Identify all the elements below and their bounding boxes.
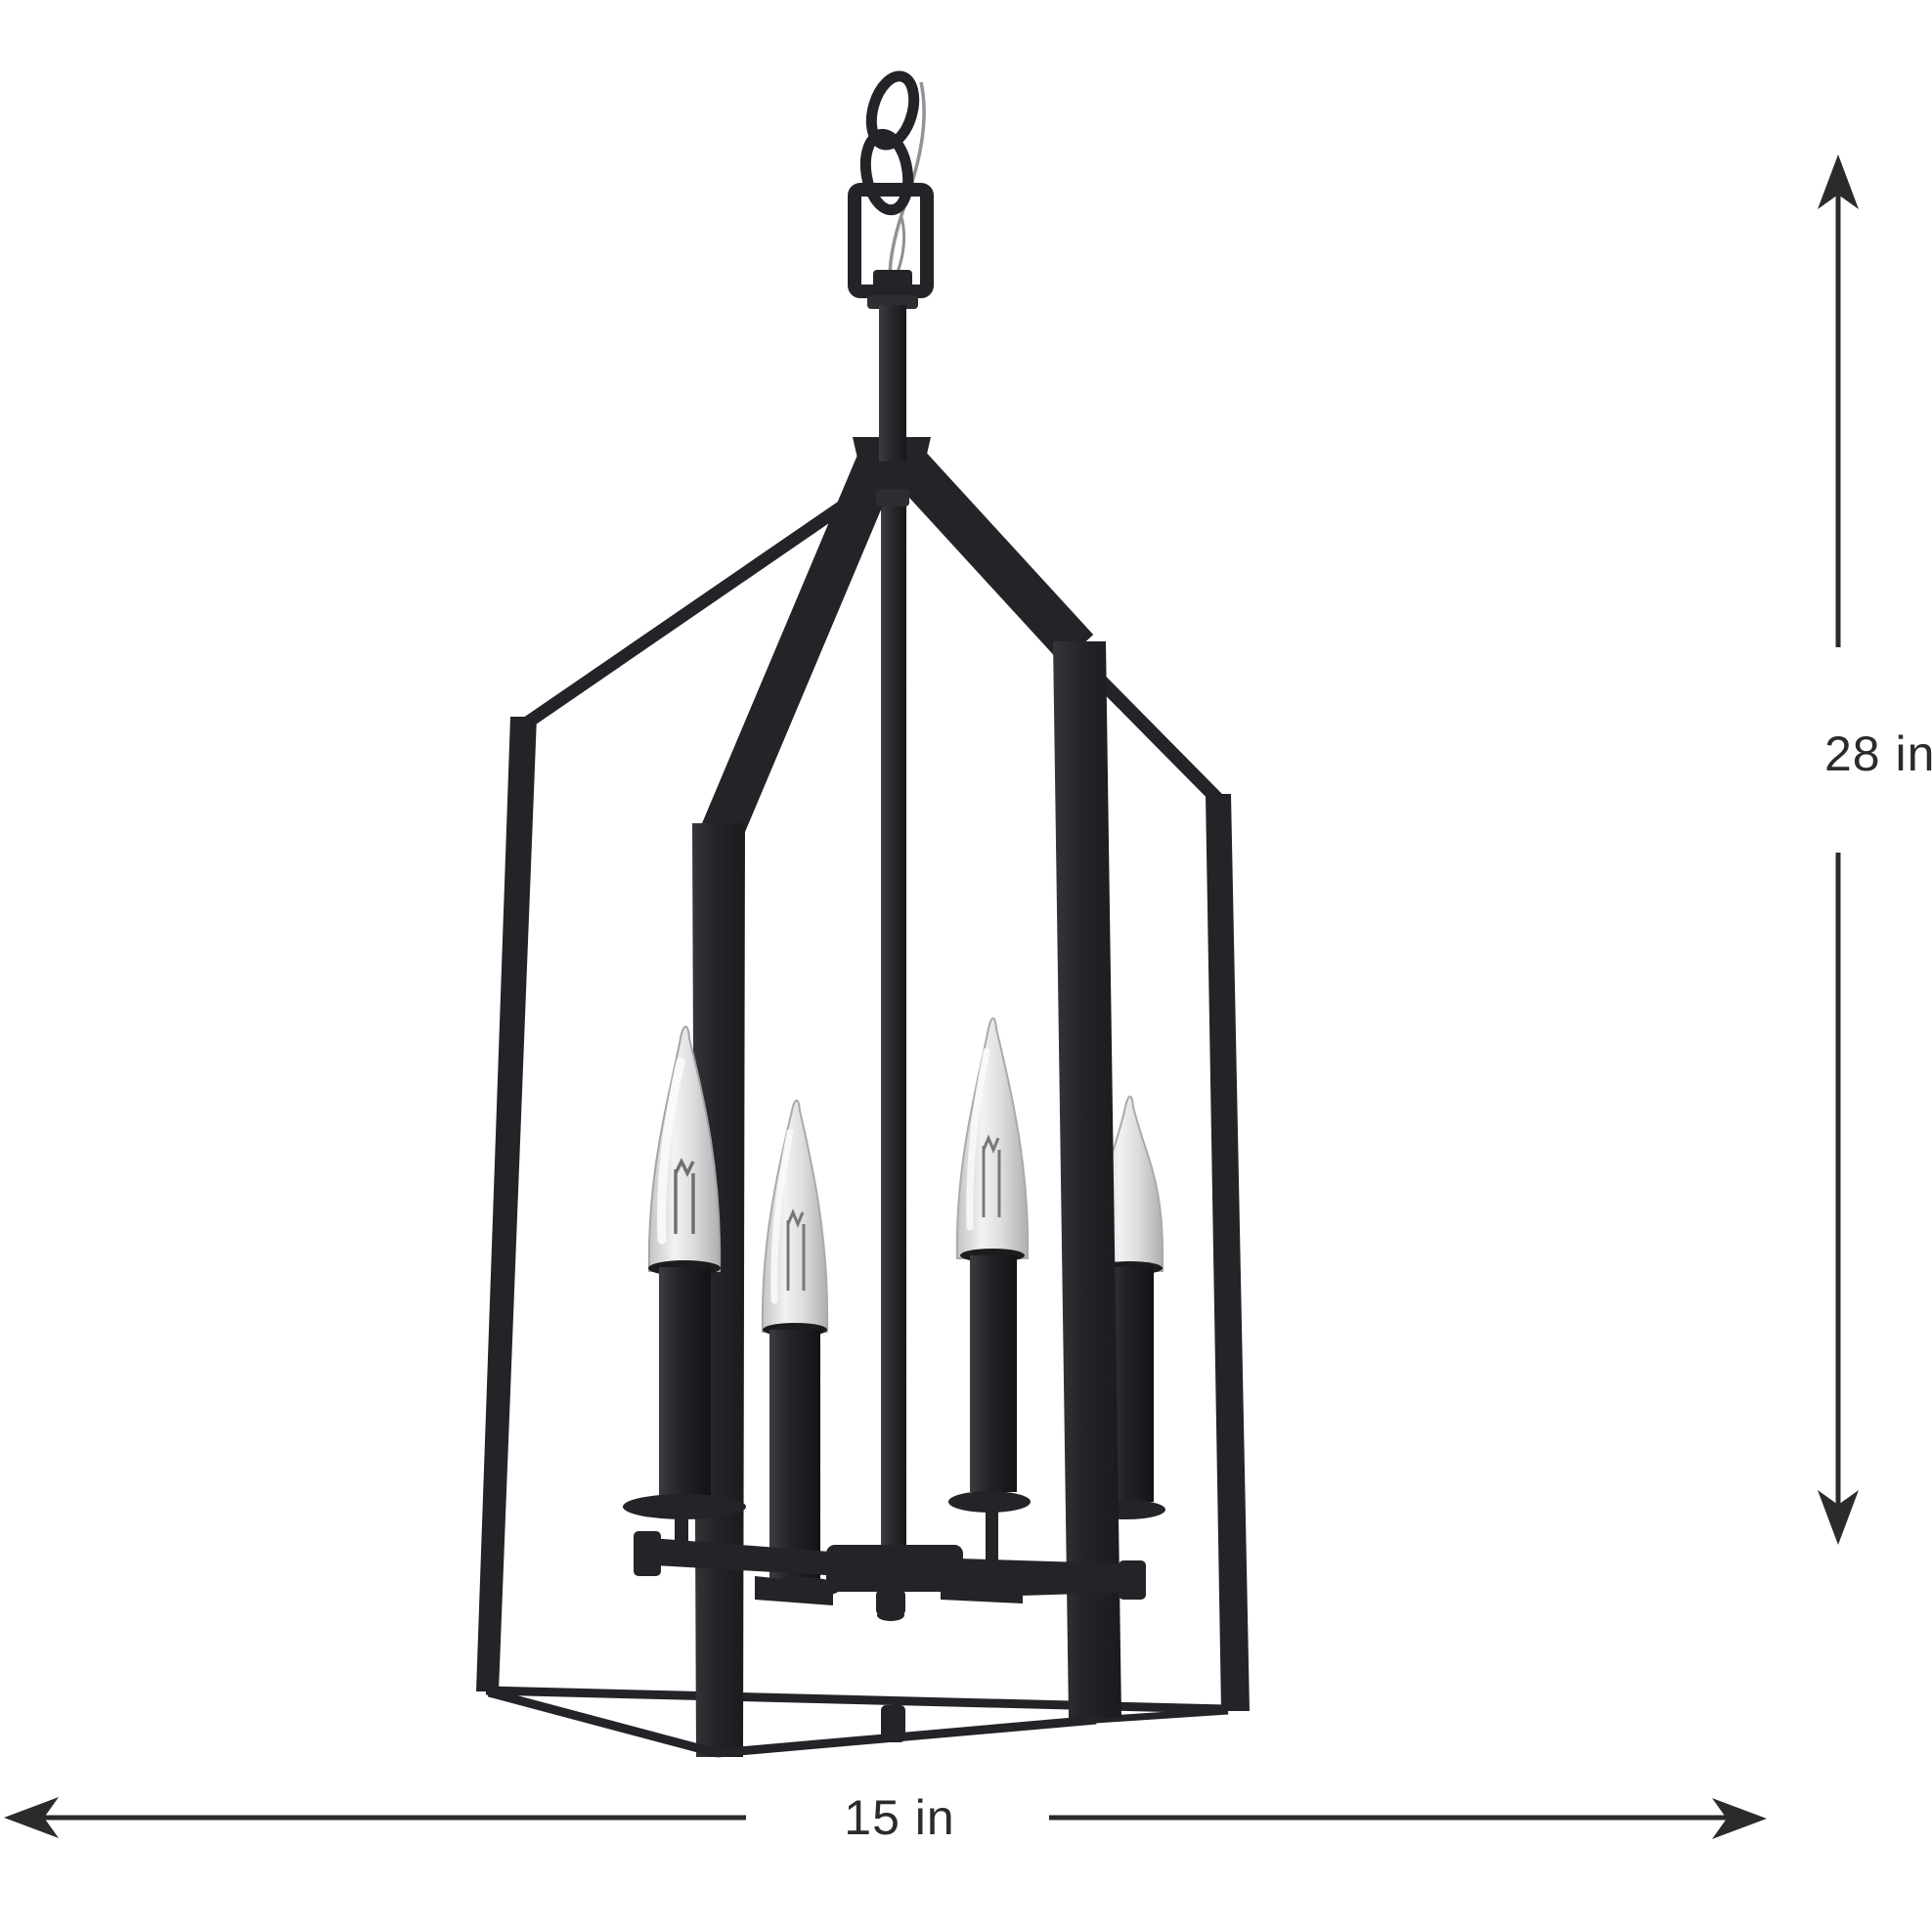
apex-nut <box>876 489 909 506</box>
bobeche-rear-right <box>948 1491 1031 1513</box>
arm-front-right-bar <box>958 1559 1144 1598</box>
width-dimension: 15 in <box>4 1790 1767 1845</box>
candle-rear-right <box>948 1019 1031 1572</box>
roof-rib-front-right <box>905 461 1077 649</box>
roof-rib-front-left <box>720 461 878 837</box>
candle-sleeve-front-left <box>659 1267 711 1502</box>
frame-bar-rear-right <box>1206 794 1250 1711</box>
bottom-rail-front <box>717 1720 1096 1753</box>
cage-frame-rear <box>476 477 1250 1720</box>
product-dimension-figure: 28 in 15 in <box>0 0 1932 1932</box>
candle-rear-left <box>759 1101 841 1600</box>
hanging-assembly <box>855 71 927 461</box>
center-rod <box>881 489 906 1551</box>
pendant-diagram-canvas: 28 in 15 in <box>0 0 1932 1932</box>
width-dimension-label: 15 in <box>844 1790 954 1845</box>
frame-bar-rear-left <box>476 717 537 1691</box>
bottom-center-stub <box>881 1705 905 1742</box>
frame-bar-front-right <box>1053 641 1121 1718</box>
upper-rod <box>879 305 906 461</box>
height-dimension-label: 28 in <box>1824 726 1932 781</box>
hub-plate <box>826 1545 963 1592</box>
stem-collar <box>873 270 912 299</box>
arm-cap-front-left <box>634 1531 661 1576</box>
candle-stem-front-left <box>675 1515 688 1549</box>
bottom-rail-left <box>489 1692 717 1753</box>
candle-sleeve-rear-left <box>769 1330 820 1579</box>
height-dimension: 28 in <box>1818 154 1932 1545</box>
arm-cap-front-right <box>1119 1560 1146 1600</box>
hub-finial-tip <box>877 1609 904 1621</box>
candle-sleeve-rear-right <box>970 1255 1017 1492</box>
